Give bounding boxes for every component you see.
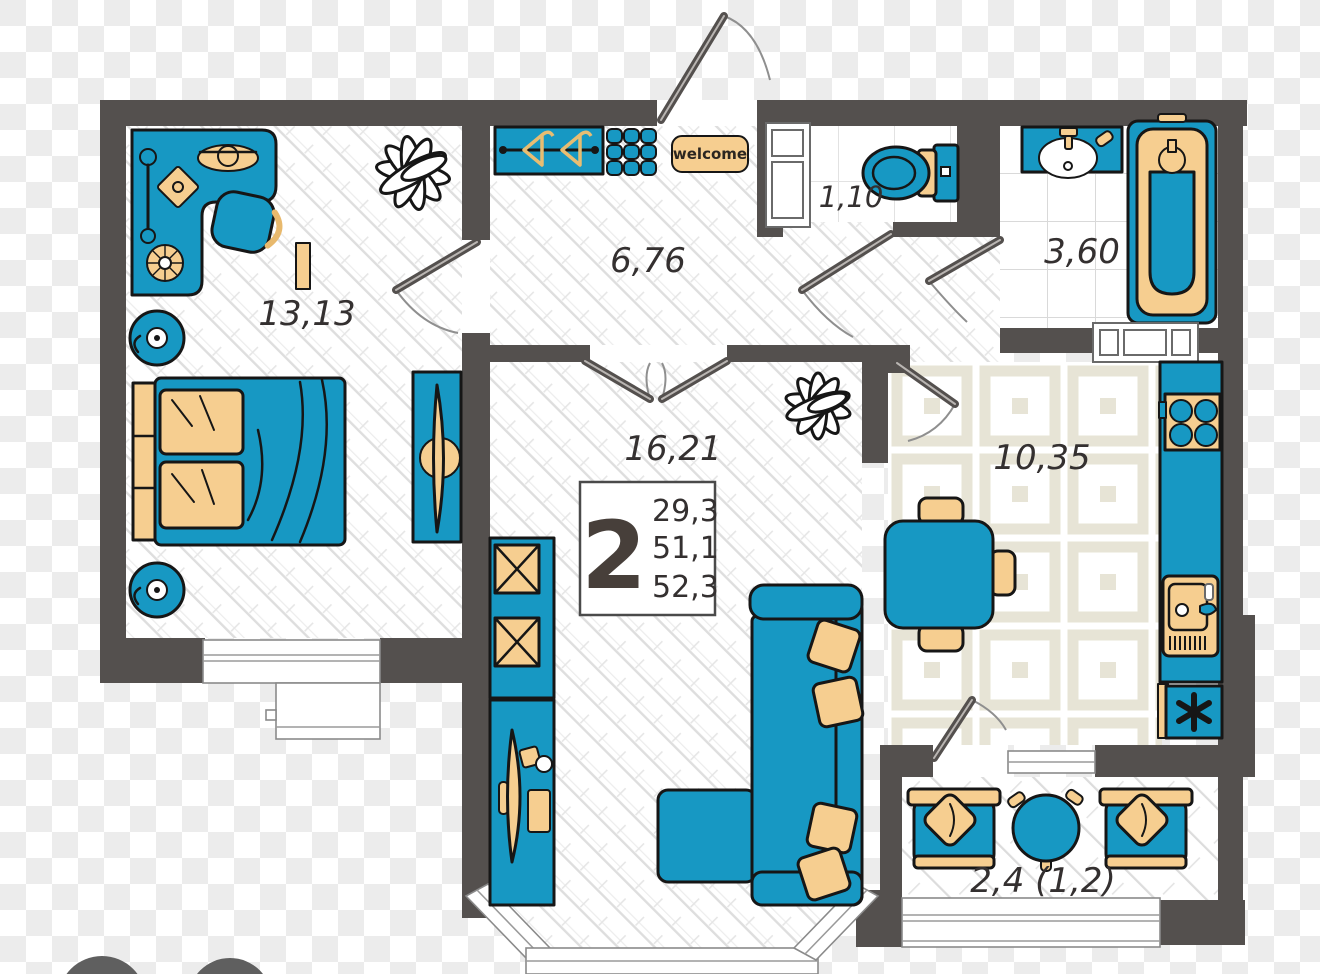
bathroom-sink — [1022, 127, 1122, 178]
apartment-area-value: 51,1 — [652, 531, 719, 566]
rooms-count-label: 2 — [581, 502, 646, 611]
kitchen-sink — [1163, 576, 1218, 656]
room-balcony — [908, 788, 1192, 871]
nightstand-speaker-icon — [130, 563, 184, 617]
console — [528, 790, 550, 832]
faucet-icon — [1200, 604, 1216, 615]
tv-stand — [490, 700, 554, 905]
kitchen-window — [1008, 751, 1095, 773]
welcome-mat-text: welcome — [673, 145, 747, 163]
bedroom-tv — [413, 372, 461, 542]
balcony-area-label: 2,4 (1,2) — [970, 861, 1115, 901]
ac-unit — [266, 683, 380, 739]
kitchen-area-label: 10,35 — [993, 438, 1090, 478]
speaker-icon — [536, 756, 552, 772]
nightstand-speaker-icon — [130, 311, 184, 365]
coat-rack — [495, 127, 603, 174]
hallway-area-label: 6,76 — [610, 241, 686, 281]
info-box: 2 29,3 51,1 52,3 — [580, 482, 719, 615]
wc-area-label: 1,10 — [819, 180, 884, 214]
bedroom-window — [203, 640, 380, 683]
pillow — [160, 462, 243, 528]
living-area-value: 29,3 — [652, 494, 719, 529]
floor-plan-svg: welcome — [0, 0, 1320, 974]
speaker-sunburst-icon — [147, 245, 183, 281]
bedroom-area-label: 13,13 — [258, 294, 355, 334]
bathtub — [1128, 114, 1216, 323]
under-counter-cabinet — [1093, 323, 1198, 362]
welcome-mat: welcome — [672, 136, 748, 172]
balcony-armchair — [908, 789, 1000, 868]
living-area-label: 16,21 — [624, 429, 721, 469]
stove — [1159, 394, 1220, 450]
total-area-value: 52,3 — [652, 570, 719, 605]
wardrobe — [490, 538, 554, 698]
desk-side-shelf — [296, 243, 310, 289]
shoe-cabinet — [607, 129, 656, 175]
washing-machine — [766, 123, 810, 227]
bathroom-area-label: 3,60 — [1044, 232, 1120, 272]
bed — [133, 378, 345, 545]
balcony-glazing — [902, 898, 1160, 947]
desk-dish-icon — [198, 145, 258, 171]
balcony-armchair — [1100, 789, 1192, 868]
floor-plan: welcome — [0, 0, 1320, 974]
fridge — [1158, 684, 1222, 738]
